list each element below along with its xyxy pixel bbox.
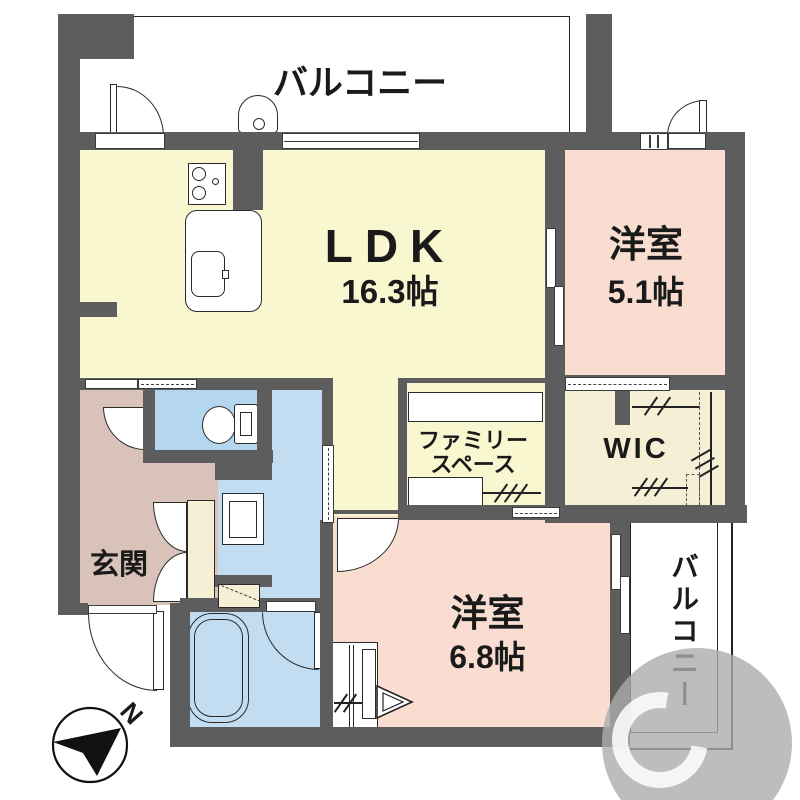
room-washroom bbox=[272, 390, 323, 613]
bedroom-6-8-size-label: 6.8帖 bbox=[390, 639, 585, 676]
entrance-door-arc bbox=[88, 613, 157, 691]
closet-door-triangle-icon bbox=[374, 682, 416, 722]
sliding-panel bbox=[554, 286, 564, 346]
window-pane bbox=[620, 576, 630, 634]
entrance-doorway bbox=[88, 605, 157, 614]
burner-icon bbox=[212, 178, 219, 185]
bedroom-closet bbox=[332, 642, 378, 735]
window-bar bbox=[657, 135, 659, 148]
wall bbox=[170, 603, 190, 747]
wall bbox=[58, 603, 88, 615]
wall bbox=[615, 390, 630, 425]
sliding-door bbox=[512, 507, 560, 518]
wall bbox=[215, 463, 272, 480]
closet-divider bbox=[349, 645, 350, 732]
ldk-label: LDK bbox=[290, 220, 490, 273]
family-space-line2: スペース bbox=[400, 453, 546, 477]
wall bbox=[545, 375, 565, 520]
toilet-tank-inner bbox=[240, 412, 252, 436]
room-ldk-passage bbox=[333, 378, 405, 516]
toilet-tank bbox=[234, 404, 258, 444]
sliding-panel bbox=[546, 228, 556, 288]
family-space-desk bbox=[408, 392, 543, 422]
family-space-label: ファミリー スペース bbox=[400, 429, 546, 477]
floor-plan: バルコニー LDK 16.3帖 洋室 5.1帖 洋室 6.8帖 ファミリー スペ… bbox=[0, 0, 800, 800]
wall bbox=[77, 302, 117, 317]
entrance-label: 玄関 bbox=[70, 549, 168, 582]
wic-dashed-box bbox=[686, 474, 700, 506]
wall bbox=[545, 505, 747, 523]
balcony-doorway bbox=[95, 133, 165, 149]
bathtub-inner bbox=[194, 619, 243, 717]
window bbox=[640, 133, 668, 150]
burner-icon bbox=[192, 186, 206, 200]
wall bbox=[333, 510, 403, 514]
wall bbox=[143, 450, 273, 463]
window-bar bbox=[649, 135, 651, 148]
closet-rod bbox=[632, 406, 700, 408]
washing-machine-icon bbox=[222, 493, 264, 545]
bathtub-icon bbox=[188, 613, 249, 723]
wall bbox=[170, 727, 630, 747]
wall bbox=[143, 388, 155, 452]
bedroom-5-1-size-label: 5.1帖 bbox=[567, 274, 725, 311]
wall bbox=[725, 132, 745, 523]
sliding-door bbox=[138, 379, 197, 389]
balcony-door-leaf bbox=[110, 84, 117, 136]
hall-opening bbox=[85, 379, 138, 389]
closet-divider bbox=[353, 645, 354, 732]
washing-machine-inner bbox=[229, 501, 257, 538]
wall bbox=[586, 14, 612, 132]
toilet-icon bbox=[202, 406, 236, 444]
pocket-door bbox=[322, 445, 334, 523]
family-space-shelf bbox=[408, 477, 483, 507]
wall bbox=[257, 383, 272, 463]
bath-doorway bbox=[266, 601, 316, 612]
water-heater-dial bbox=[253, 118, 265, 130]
family-space-line1: ファミリー bbox=[400, 429, 546, 453]
faucet-icon bbox=[222, 270, 229, 279]
sink-icon bbox=[191, 251, 225, 297]
wall bbox=[322, 383, 333, 445]
wall bbox=[320, 520, 333, 742]
wall bbox=[233, 133, 263, 210]
bedroom-5-1-label: 洋室 bbox=[567, 224, 725, 267]
wic-label: WIC bbox=[565, 433, 707, 466]
bedroom-6-8-label: 洋室 bbox=[390, 593, 585, 636]
window bbox=[282, 133, 420, 149]
ldk-size-label: 16.3帖 bbox=[290, 273, 490, 311]
burner-icon bbox=[192, 167, 206, 181]
vanity-icon bbox=[218, 584, 260, 608]
stove-icon bbox=[188, 163, 226, 205]
balcony-top-label: バルコニー bbox=[230, 64, 490, 104]
wic-sliding-door bbox=[565, 377, 670, 391]
entrance-door-leaf bbox=[153, 611, 164, 690]
bedroom-5-1-doorway bbox=[668, 133, 706, 149]
wall bbox=[398, 378, 545, 383]
shoe-closet bbox=[187, 500, 215, 602]
